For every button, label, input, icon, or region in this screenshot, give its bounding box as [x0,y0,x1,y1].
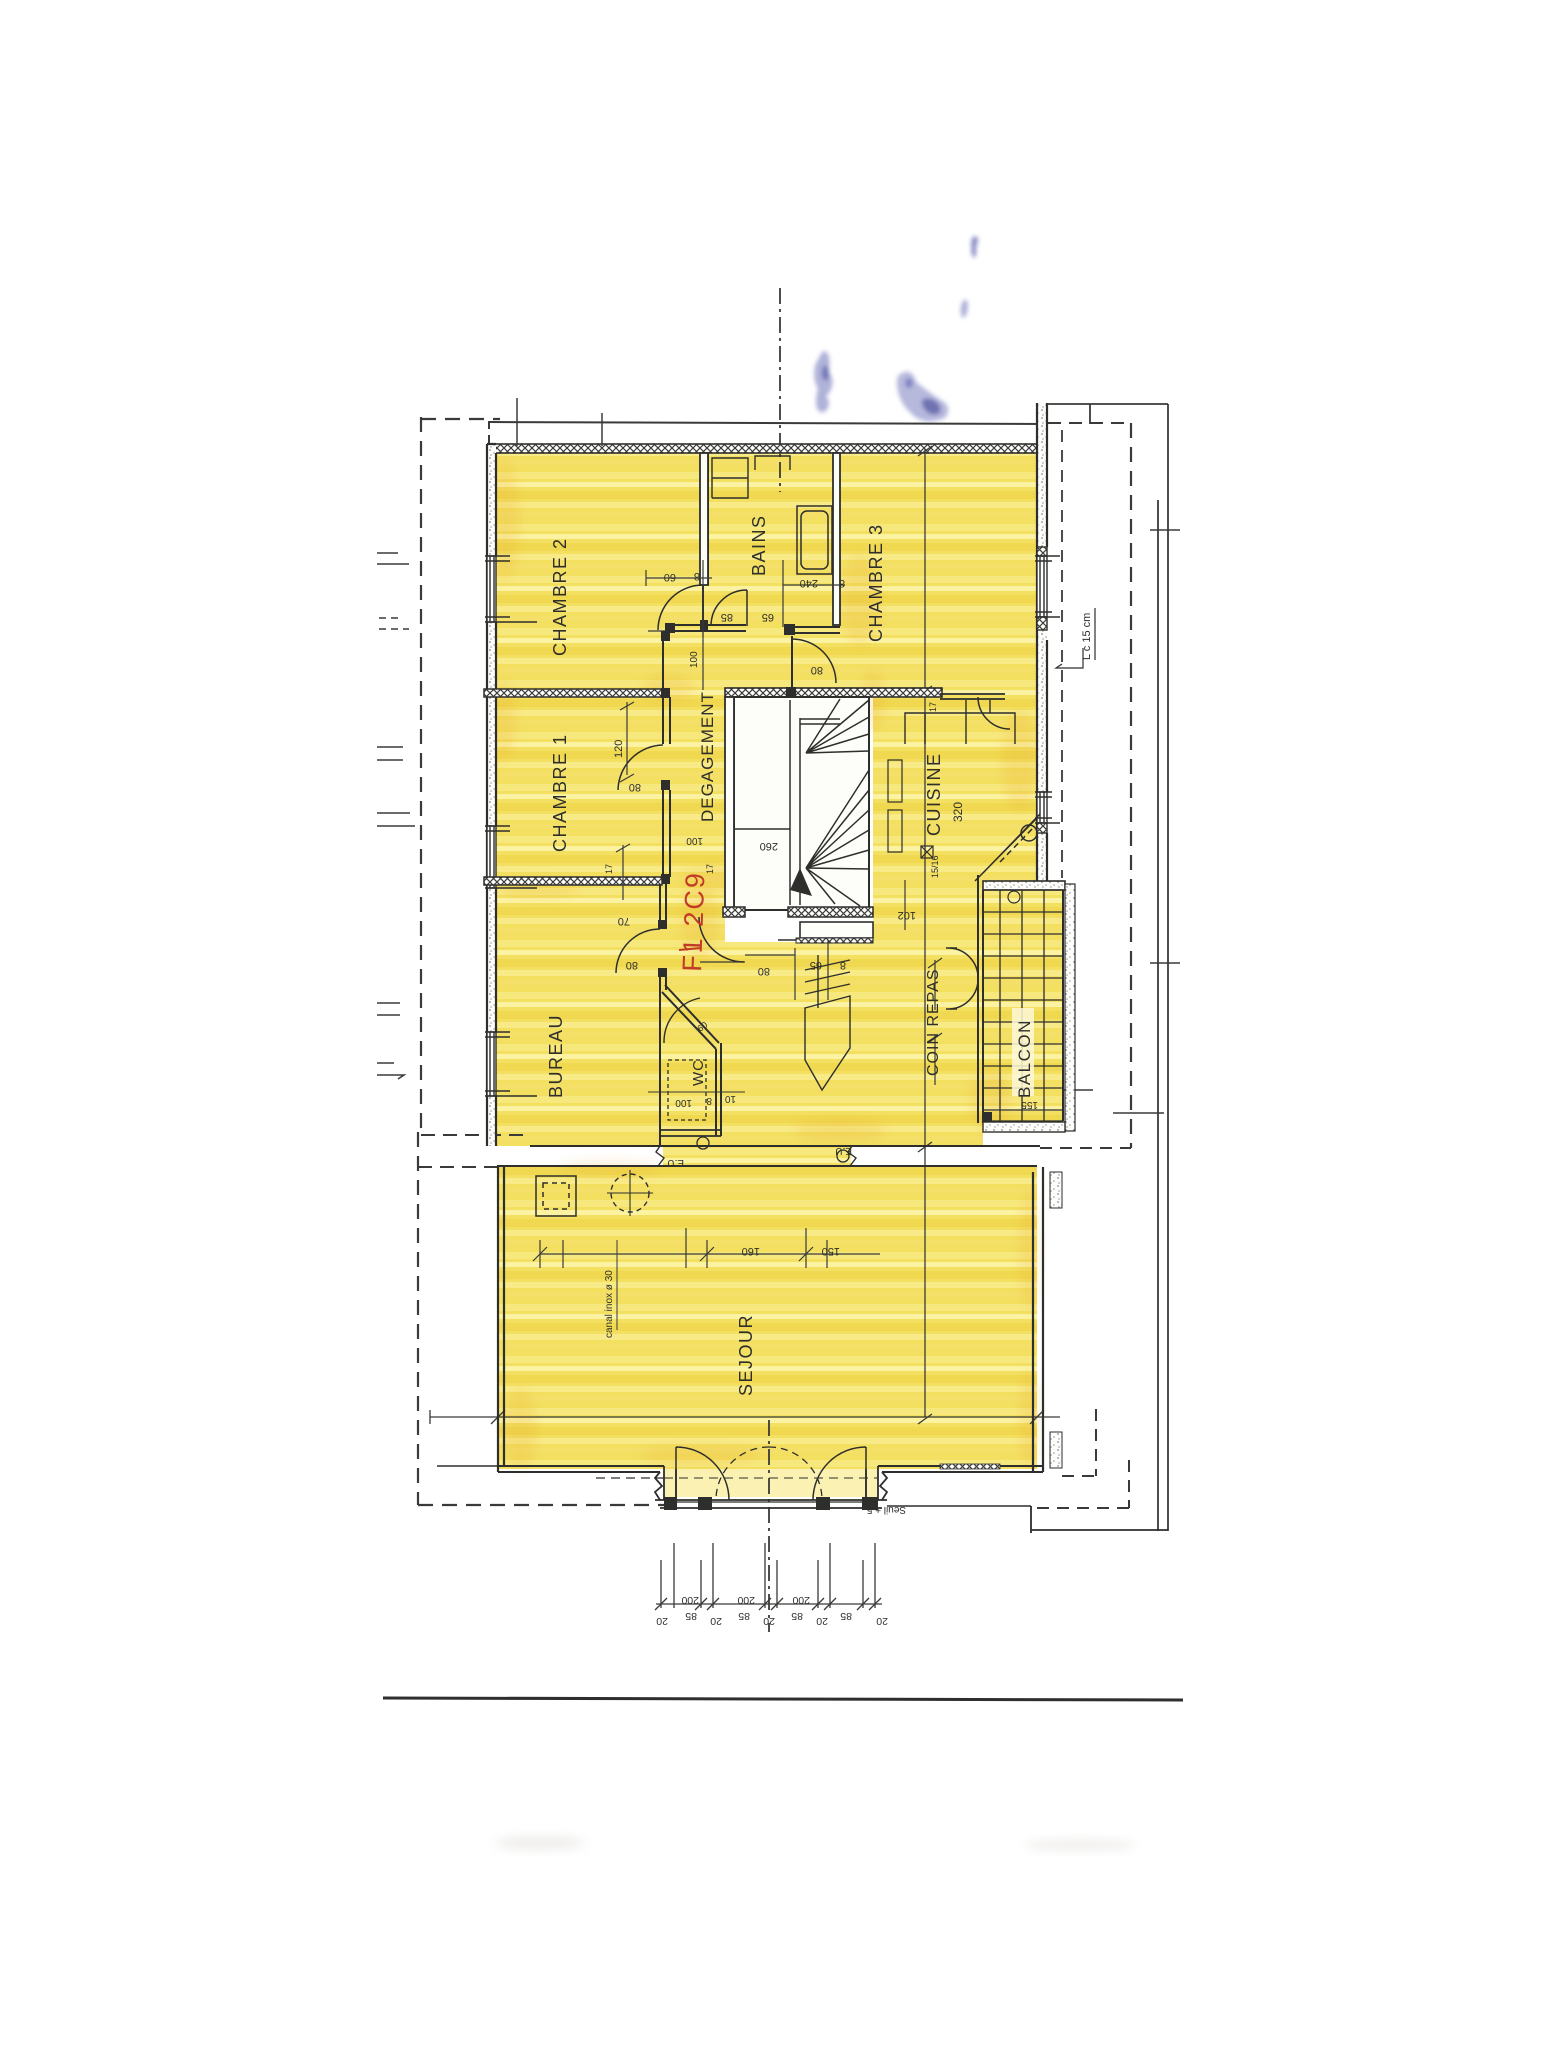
svg-text:20: 20 [816,1615,828,1627]
svg-text:120: 120 [613,740,625,758]
svg-text:80: 80 [629,781,641,793]
svg-text:CHAMBRE 1: CHAMBRE 1 [550,733,570,852]
svg-text:10: 10 [724,1093,736,1104]
svg-text:17: 17 [604,864,614,874]
svg-text:CHAMBRE 2: CHAMBRE 2 [550,537,570,656]
svg-text:155: 155 [1021,1099,1038,1110]
svg-text:15/16: 15/16 [930,855,940,878]
svg-text:20: 20 [710,1615,722,1627]
svg-text:WC: WC [690,1059,707,1086]
svg-text:260: 260 [760,840,778,852]
svg-text:20: 20 [876,1615,888,1627]
svg-text:CUISINE: CUISINE [924,752,944,836]
svg-text:F1 2C9: F1 2C9 [677,871,710,973]
svg-text:100: 100 [675,1097,692,1108]
svg-text:102: 102 [898,909,916,921]
svg-text:canal inox ø 30: canal inox ø 30 [604,1270,615,1338]
svg-text:200: 200 [681,1594,699,1606]
svg-text:320: 320 [951,802,965,822]
svg-text:20: 20 [656,1615,668,1627]
svg-text:8: 8 [706,1095,712,1106]
svg-text:20: 20 [763,1615,775,1627]
svg-text:65: 65 [762,611,774,623]
svg-text:240: 240 [800,577,818,589]
svg-text:200: 200 [792,1594,810,1606]
svg-text:8: 8 [839,577,845,589]
svg-text:8: 8 [694,570,700,582]
svg-text:100: 100 [686,835,703,846]
svg-text:BUREAU: BUREAU [546,1014,566,1098]
svg-text:85: 85 [721,611,733,623]
svg-text:100: 100 [689,651,700,668]
svg-text:85: 85 [791,1610,803,1622]
svg-text:80: 80 [626,959,638,971]
svg-text:85: 85 [685,1610,697,1622]
svg-text:BALCON: BALCON [1015,1019,1034,1098]
svg-text:SEJOUR: SEJOUR [736,1314,756,1396]
svg-text:85: 85 [840,1610,852,1622]
svg-text:60: 60 [664,571,676,583]
svg-text:200: 200 [737,1594,755,1606]
svg-text:160: 160 [742,1245,760,1257]
svg-text:CHAMBRE 3: CHAMBRE 3 [866,523,886,642]
svg-text:85: 85 [738,1610,750,1622]
svg-text:150: 150 [822,1245,840,1257]
svg-text:DEGAGEMENT: DEGAGEMENT [698,691,717,822]
svg-text:17: 17 [928,702,938,712]
svg-text:COIN REPAS: COIN REPAS [925,969,942,1077]
svg-text:80: 80 [811,664,823,676]
svg-text:BAINS: BAINS [749,514,769,576]
svg-text:80: 80 [758,965,770,977]
svg-text:70: 70 [618,915,630,927]
